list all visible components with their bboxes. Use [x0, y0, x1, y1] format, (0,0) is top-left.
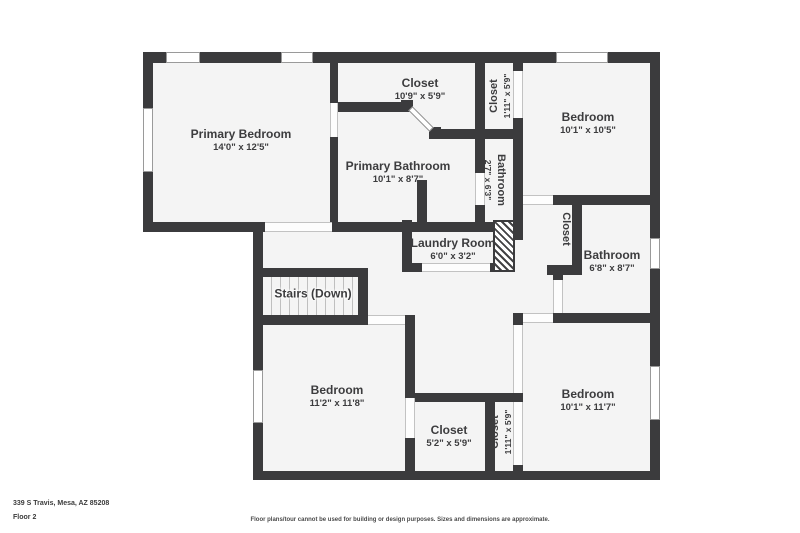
window — [556, 52, 608, 63]
address-text: 339 S Travis, Mesa, AZ 85208 — [13, 500, 109, 507]
wall — [553, 195, 660, 205]
wall — [572, 195, 582, 275]
room-label-primary-bedroom: Primary Bedroom 14'0" x 12'5" — [191, 127, 292, 153]
utility-hatch — [493, 220, 515, 272]
room-label-bedroom-top-right: Bedroom 10'1" x 10'5" — [560, 110, 616, 136]
wall — [358, 268, 368, 325]
wall — [253, 222, 263, 480]
door-opening — [368, 315, 405, 325]
door-opening — [523, 195, 553, 205]
wall — [405, 393, 523, 402]
door-opening — [523, 313, 553, 323]
door-opening — [513, 325, 523, 393]
room-label-closet-mid-right: Closet — [558, 212, 572, 246]
room-label-closet-bottom-strip: Closet 1'11" x 5'9" — [489, 410, 513, 455]
room-label-primary-bathroom: Primary Bathroom 10'1" x 8'7" — [346, 159, 451, 185]
room-label-laundry: Laundry Room 6'0" x 3'2" — [411, 236, 496, 262]
disclaimer-text: Floor plans/tour cannot be used for buil… — [0, 517, 800, 523]
wall — [338, 102, 407, 112]
wall — [553, 313, 660, 323]
door-opening — [422, 263, 490, 272]
door-opening — [265, 222, 332, 232]
room-label-bedroom-bottom-right: Bedroom 10'1" x 11'7" — [560, 387, 615, 413]
window — [253, 370, 263, 423]
door-opening — [513, 71, 523, 118]
wall — [253, 471, 660, 480]
room-label-bathroom-right: Bathroom 6'8" x 8'7" — [584, 248, 641, 274]
floor-plan: Primary Bedroom 14'0" x 12'5" Closet 10'… — [0, 0, 800, 533]
door-opening — [553, 280, 563, 313]
room-label-closet-bottom: Closet 5'2" x 5'9" — [426, 423, 471, 449]
window — [650, 366, 660, 420]
wall — [330, 52, 338, 232]
wall — [417, 180, 427, 222]
room-label-stairs: Stairs (Down) — [274, 287, 351, 302]
door-opening — [405, 398, 415, 438]
window — [143, 108, 153, 172]
room-label-closet-top-strip: Closet 1'11" x 5'9" — [488, 74, 512, 119]
room-label-closet-primary: Closet 10'9" x 5'9" — [395, 76, 446, 102]
wall — [253, 268, 368, 277]
window — [281, 52, 313, 63]
room-label-bathroom-strip: Bathroom 2'7" x 6'3" — [483, 154, 507, 206]
window — [166, 52, 200, 63]
door-opening — [330, 103, 338, 137]
room-label-bedroom-bottom-left: Bedroom 11'2" x 11'8" — [310, 383, 365, 409]
door-opening — [513, 402, 523, 465]
wall — [475, 62, 485, 232]
window — [650, 238, 660, 269]
